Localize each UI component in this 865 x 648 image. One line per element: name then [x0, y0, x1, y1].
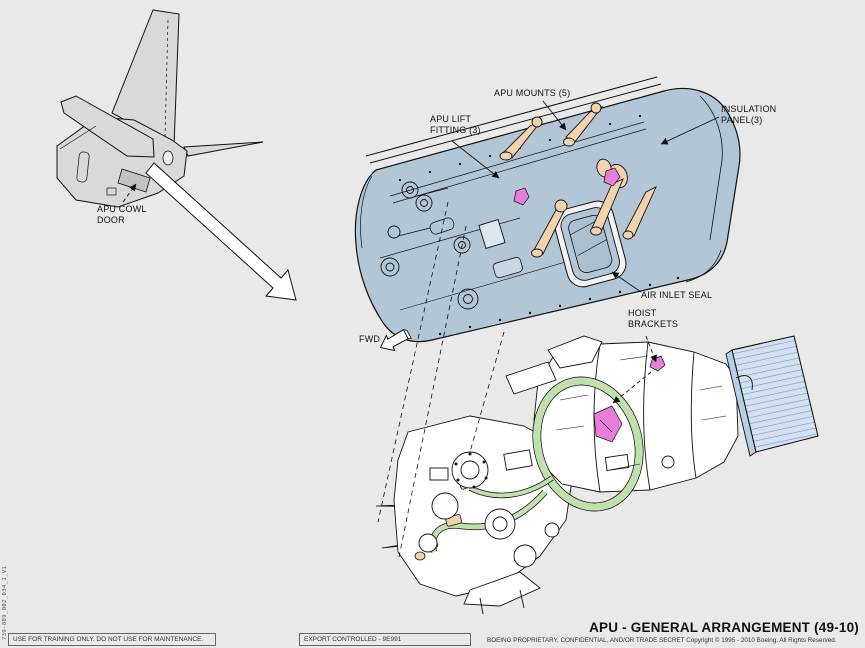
fwd-label: FWD — [359, 334, 385, 345]
door-panel — [355, 88, 740, 341]
insulation-panel-label: INSULATION PANEL(3) — [721, 104, 787, 125]
training-notice: USE FOR TRAINING ONLY. DO NOT USE FOR MA… — [8, 633, 216, 646]
apu-cowl-door-label: APU COWL DOOR — [97, 204, 155, 225]
casing-port — [662, 456, 674, 468]
document-number: 739-889_002_034_1_V1 — [2, 566, 8, 640]
export-notice: EXPORT CONTROLLED - 9E991 — [299, 633, 471, 646]
detail-pointer-arrow — [146, 163, 296, 300]
apu-lift-fitting-label: APU LIFT FITTING (3) — [430, 114, 486, 135]
air-inlet-seal-label: AIR INLET SEAL — [641, 290, 751, 301]
casing-box — [605, 455, 629, 471]
proprietary-notice: BOEING PROPRIETARY, CONFIDENTIAL, AND/OR… — [487, 636, 861, 645]
page-title: APU - GENERAL ARRANGEMENT (49-10) — [589, 620, 859, 635]
hoist-brackets-label: HOIST BRACKETS — [628, 308, 690, 329]
cowl-door-illustration — [355, 77, 740, 342]
apu-engine-illustration — [376, 336, 818, 614]
diagram-page: APU MOUNTS (5) APU LIFT FITTING (3) INSU… — [0, 0, 865, 648]
right-stabilizer — [184, 142, 263, 156]
oil-cooler — [726, 336, 818, 456]
apu-exhaust-port — [163, 151, 173, 165]
apu-diagram-artwork — [0, 0, 865, 648]
apu-mounts-label: APU MOUNTS (5) — [494, 88, 614, 99]
